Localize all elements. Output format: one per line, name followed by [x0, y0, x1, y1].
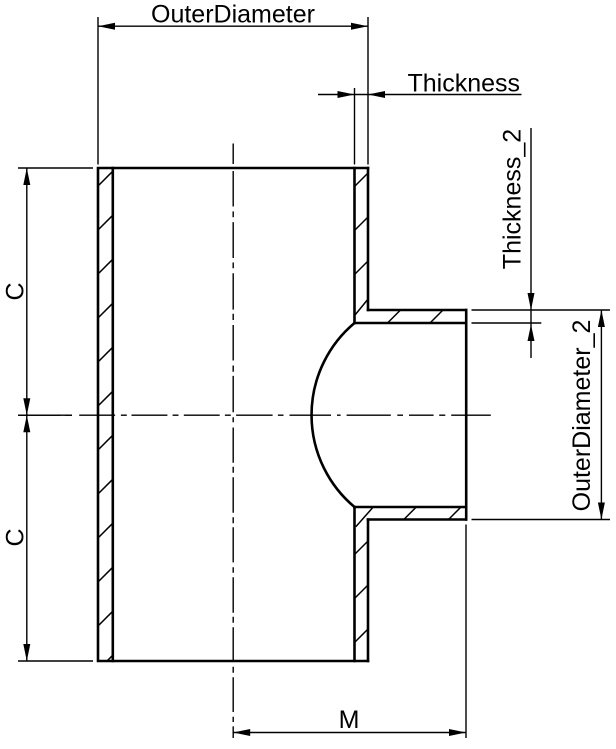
svg-text:C: C	[2, 282, 30, 300]
svg-text:Thickness_2: Thickness_2	[499, 129, 527, 269]
svg-text:M: M	[339, 706, 360, 734]
svg-text:OuterDiameter: OuterDiameter	[151, 0, 315, 28]
svg-text:OuterDiameter_2: OuterDiameter_2	[568, 320, 596, 512]
svg-text:C: C	[2, 528, 30, 546]
svg-text:Thickness: Thickness	[408, 70, 521, 98]
